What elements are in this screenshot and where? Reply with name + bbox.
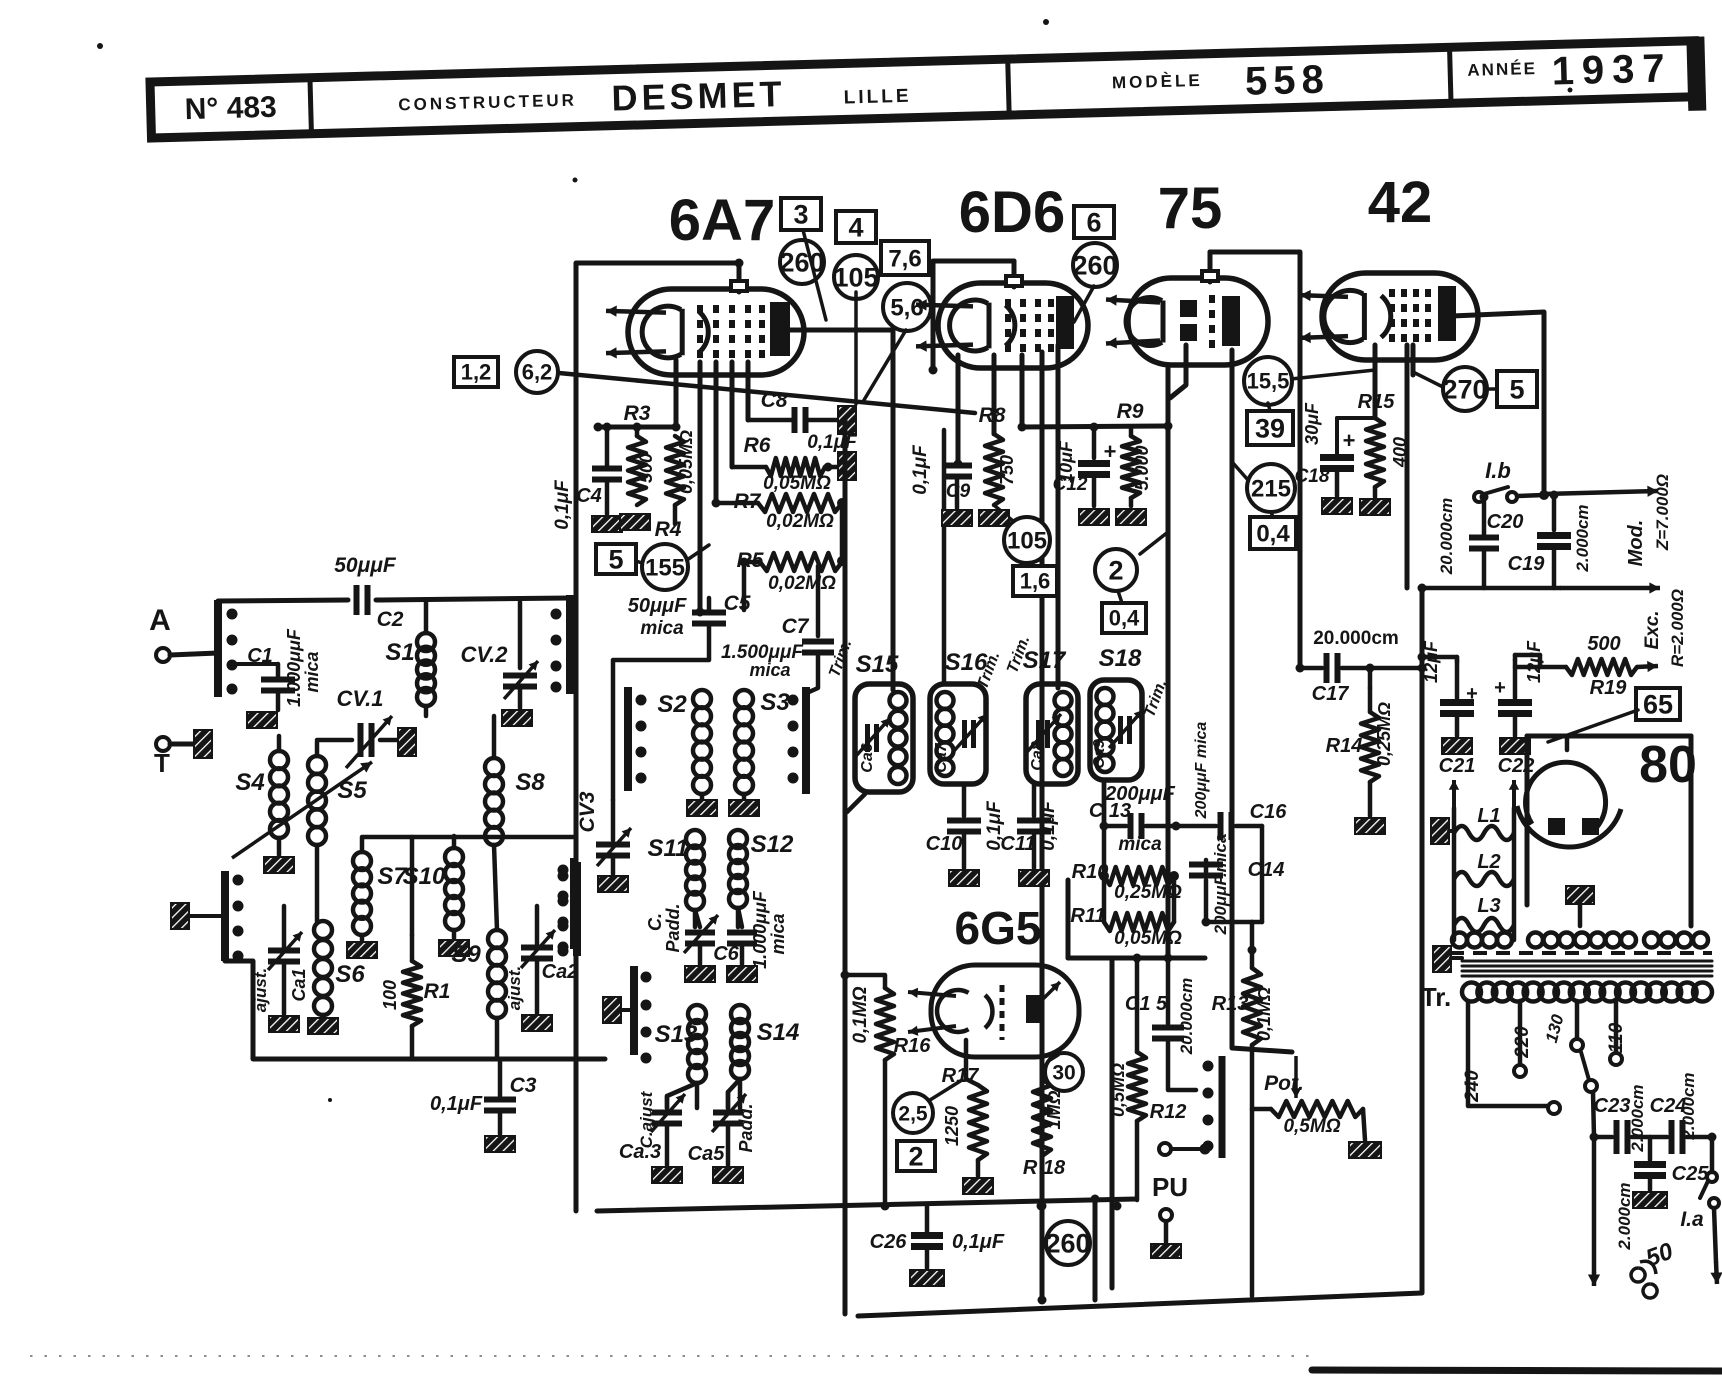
svg-text:S1: S1 xyxy=(385,639,414,666)
svg-text:Ca7: Ca7 xyxy=(933,742,950,772)
svg-text:Exc.: Exc. xyxy=(1642,610,1663,649)
svg-text:50μμF: 50μμF xyxy=(334,554,397,577)
svg-text:0,1μF: 0,1μF xyxy=(552,479,573,530)
svg-text:+: + xyxy=(1494,677,1506,699)
svg-text:A: A xyxy=(149,604,171,637)
svg-text:0,05MΩ: 0,05MΩ xyxy=(676,430,696,494)
svg-text:C5: C5 xyxy=(724,592,751,615)
svg-text:Ca6: Ca6 xyxy=(859,743,876,772)
svg-text:80: 80 xyxy=(1639,736,1697,794)
svg-text:R11: R11 xyxy=(1070,905,1105,927)
svg-text:C3: C3 xyxy=(510,1074,537,1097)
svg-text:PU: PU xyxy=(1152,1172,1188,1202)
svg-text:Pot.: Pot. xyxy=(1264,1072,1304,1095)
svg-text:3: 3 xyxy=(793,199,808,229)
svg-text:0,1μF: 0,1μF xyxy=(1038,800,1059,851)
svg-text:CV.1: CV.1 xyxy=(337,686,384,711)
svg-text:Ca9: Ca9 xyxy=(1091,739,1108,768)
svg-text:R16: R16 xyxy=(894,1035,932,1057)
svg-text:C17: C17 xyxy=(1312,683,1350,705)
svg-text:20.000cm: 20.000cm xyxy=(1437,498,1456,576)
svg-text:S3: S3 xyxy=(760,689,790,716)
svg-text:0,02MΩ: 0,02MΩ xyxy=(766,511,834,532)
svg-text:R 18: R 18 xyxy=(1023,1157,1066,1179)
svg-text:ANNÉE: ANNÉE xyxy=(1467,59,1537,80)
svg-text:500: 500 xyxy=(636,453,656,483)
svg-text:S18: S18 xyxy=(1099,645,1142,672)
svg-text:R3: R3 xyxy=(624,402,651,425)
svg-text:R13: R13 xyxy=(1212,993,1249,1015)
svg-text:400: 400 xyxy=(1390,437,1410,468)
svg-text:N° 483: N° 483 xyxy=(184,91,277,126)
svg-text:C8: C8 xyxy=(761,389,788,412)
svg-text:260: 260 xyxy=(1045,1228,1090,1258)
svg-text:0,1μF: 0,1μF xyxy=(910,444,931,495)
svg-text:6G5: 6G5 xyxy=(955,902,1042,954)
svg-text:C21: C21 xyxy=(1439,755,1476,777)
svg-text:R6: R6 xyxy=(744,434,771,457)
svg-text:0,25MΩ: 0,25MΩ xyxy=(1374,702,1394,766)
svg-text:R14: R14 xyxy=(1326,735,1363,757)
svg-text:R=2.000Ω: R=2.000Ω xyxy=(1668,589,1687,667)
svg-text:C1 5: C1 5 xyxy=(1125,993,1168,1015)
svg-text:C.: C. xyxy=(645,913,665,931)
svg-text:C11: C11 xyxy=(1000,833,1035,855)
svg-text:1MΩ: 1MΩ xyxy=(1044,1090,1064,1129)
svg-text:7,6: 7,6 xyxy=(888,245,921,272)
svg-text:S9: S9 xyxy=(451,941,481,968)
svg-text:0,5MΩ: 0,5MΩ xyxy=(1108,1063,1128,1117)
svg-text:65: 65 xyxy=(1643,689,1673,719)
svg-text:C23: C23 xyxy=(1594,1095,1631,1117)
svg-text:215: 215 xyxy=(1251,475,1291,502)
svg-text:42: 42 xyxy=(1368,170,1433,235)
svg-text:I.b: I.b xyxy=(1485,458,1511,483)
svg-text:4: 4 xyxy=(848,212,863,242)
svg-text:6D6: 6D6 xyxy=(959,180,1065,245)
svg-text:0,1MΩ: 0,1MΩ xyxy=(850,986,871,1043)
svg-text:CV.2: CV.2 xyxy=(461,642,509,667)
svg-text:+: + xyxy=(1466,683,1478,705)
svg-text:mica: mica xyxy=(640,618,684,639)
svg-text:C16: C16 xyxy=(1250,801,1288,823)
svg-text:500: 500 xyxy=(1587,633,1620,655)
svg-text:105: 105 xyxy=(1007,527,1047,554)
svg-text:R8: R8 xyxy=(979,404,1006,427)
svg-text:558: 558 xyxy=(1244,58,1330,104)
svg-text:0,1μF: 0,1μF xyxy=(807,432,858,453)
svg-text:C2: C2 xyxy=(377,608,404,631)
svg-text:R1: R1 xyxy=(424,980,451,1003)
svg-text:2: 2 xyxy=(908,1141,923,1171)
svg-text:39: 39 xyxy=(1255,413,1285,443)
svg-text:C14: C14 xyxy=(1248,859,1285,881)
svg-text:L1: L1 xyxy=(1477,805,1500,827)
svg-text:0,1MΩ: 0,1MΩ xyxy=(1254,987,1274,1041)
svg-text:270: 270 xyxy=(1442,374,1487,404)
svg-text:L3: L3 xyxy=(1477,895,1500,917)
svg-text:0,1μF: 0,1μF xyxy=(952,1231,1005,1253)
svg-text:0,5MΩ: 0,5MΩ xyxy=(1283,1116,1340,1137)
svg-text:C10: C10 xyxy=(926,833,963,855)
svg-text:S17: S17 xyxy=(1023,647,1067,674)
svg-text:C26: C26 xyxy=(870,1231,908,1253)
svg-text:5.000: 5.000 xyxy=(1132,445,1152,490)
svg-text:R15: R15 xyxy=(1358,391,1396,413)
svg-text:mica: mica xyxy=(749,660,790,680)
svg-text:Padd.: Padd. xyxy=(736,1103,756,1152)
svg-text:R9: R9 xyxy=(1117,400,1144,423)
svg-text:0,05MΩ: 0,05MΩ xyxy=(763,473,831,494)
svg-text:0,05MΩ: 0,05MΩ xyxy=(1114,928,1182,949)
svg-text:S13: S13 xyxy=(655,1021,698,1048)
svg-text:S4: S4 xyxy=(235,769,264,796)
svg-text:S11: S11 xyxy=(648,835,689,862)
svg-text:20.000cm: 20.000cm xyxy=(1177,978,1196,1056)
svg-text:2,5: 2,5 xyxy=(898,1102,928,1125)
svg-text:R12: R12 xyxy=(1150,1101,1187,1123)
svg-text:C12: C12 xyxy=(1053,474,1088,495)
svg-text:6,2: 6,2 xyxy=(522,360,553,385)
svg-text:S12: S12 xyxy=(751,831,794,858)
svg-text:C1: C1 xyxy=(247,645,273,667)
svg-text:1,6: 1,6 xyxy=(1020,569,1051,594)
svg-text:S6: S6 xyxy=(335,961,365,988)
svg-text:6A7: 6A7 xyxy=(669,188,775,253)
svg-text:+: + xyxy=(1343,428,1356,453)
svg-text:Z=7.000Ω: Z=7.000Ω xyxy=(1653,474,1672,551)
svg-text:LILLE: LILLE xyxy=(844,86,912,109)
svg-text:30: 30 xyxy=(1052,1061,1075,1084)
svg-text:2.000cm: 2.000cm xyxy=(1573,504,1592,572)
svg-text:I.a: I.a xyxy=(1680,1208,1704,1231)
svg-text:6: 6 xyxy=(1086,207,1101,237)
svg-text:0,1μF: 0,1μF xyxy=(430,1093,483,1115)
svg-text:1250: 1250 xyxy=(942,1106,962,1146)
svg-text:20.000cm: 20.000cm xyxy=(1313,628,1399,649)
svg-text:+: + xyxy=(1104,439,1117,464)
svg-text:mica: mica xyxy=(768,913,788,954)
svg-text:R19: R19 xyxy=(1590,677,1628,699)
svg-text:5: 5 xyxy=(1509,374,1524,404)
svg-text:S10: S10 xyxy=(403,863,446,890)
svg-text:Ca1: Ca1 xyxy=(289,968,309,1001)
svg-text:Tr.: Tr. xyxy=(1421,982,1451,1012)
svg-text:1.000μμF: 1.000μμF xyxy=(750,890,770,969)
svg-text:2.000cm: 2.000cm xyxy=(1615,1182,1634,1250)
svg-text:C6: C6 xyxy=(713,943,739,965)
svg-text:R17: R17 xyxy=(942,1065,980,1087)
svg-text:0,4: 0,4 xyxy=(1109,606,1140,631)
svg-text:S15: S15 xyxy=(856,651,899,678)
svg-text:mica: mica xyxy=(1118,834,1162,855)
svg-text:5: 5 xyxy=(608,544,623,574)
svg-text:5,6: 5,6 xyxy=(890,294,923,321)
svg-text:260: 260 xyxy=(779,247,824,277)
svg-text:750: 750 xyxy=(997,455,1017,485)
svg-text:C.ajust: C.ajust xyxy=(637,1090,656,1148)
svg-text:R7: R7 xyxy=(734,490,762,513)
svg-text:Ca8: Ca8 xyxy=(1029,741,1046,770)
svg-text:1937: 1937 xyxy=(1551,46,1673,93)
svg-text:DESMET: DESMET xyxy=(611,73,786,119)
svg-text:15,5: 15,5 xyxy=(1247,369,1290,394)
svg-text:C7: C7 xyxy=(782,615,810,638)
svg-text:75: 75 xyxy=(1158,176,1223,241)
svg-text:Ca.3: Ca.3 xyxy=(619,1141,661,1163)
svg-text:50μμF: 50μμF xyxy=(628,595,687,617)
svg-text:ajust.: ajust. xyxy=(505,966,524,1010)
svg-text:220: 220 xyxy=(1512,1026,1533,1059)
svg-text:105: 105 xyxy=(833,262,878,292)
svg-text:Ca5: Ca5 xyxy=(688,1143,726,1165)
svg-text:mica: mica xyxy=(302,651,322,692)
svg-text:Mod.: Mod. xyxy=(1625,520,1647,567)
svg-text:2.000cm: 2.000cm xyxy=(1628,1084,1647,1152)
svg-text:CV3: CV3 xyxy=(576,791,599,832)
svg-text:30μF: 30μF xyxy=(1302,402,1322,445)
svg-text:100: 100 xyxy=(380,980,400,1010)
svg-text:Padd.: Padd. xyxy=(663,903,683,952)
svg-text:C9: C9 xyxy=(946,481,971,502)
svg-text:C4: C4 xyxy=(576,485,602,507)
svg-text:S14: S14 xyxy=(757,1019,800,1046)
svg-text:C19: C19 xyxy=(1508,553,1546,575)
svg-text:L2: L2 xyxy=(1477,851,1500,873)
svg-text:C 13: C 13 xyxy=(1089,800,1131,822)
svg-text:Ca2: Ca2 xyxy=(542,961,579,983)
svg-text:2: 2 xyxy=(1108,555,1123,585)
svg-text:0,02MΩ: 0,02MΩ xyxy=(768,573,836,594)
svg-text:200μμF mica: 200μμF mica xyxy=(1193,722,1210,820)
svg-text:0,4: 0,4 xyxy=(1256,520,1290,547)
svg-text:C18: C18 xyxy=(1295,466,1330,487)
svg-text:240: 240 xyxy=(1462,1070,1483,1103)
svg-text:155: 155 xyxy=(645,554,685,581)
svg-text:1.000μμF: 1.000μμF xyxy=(284,628,304,707)
svg-text:R4: R4 xyxy=(655,518,682,541)
svg-text:260: 260 xyxy=(1072,250,1117,280)
svg-text:C25: C25 xyxy=(1672,1163,1710,1185)
svg-text:1,2: 1,2 xyxy=(461,360,492,385)
svg-text:S2: S2 xyxy=(657,691,687,718)
svg-text:S8: S8 xyxy=(515,769,545,796)
svg-text:110: 110 xyxy=(1606,1022,1627,1053)
svg-text:MODÈLE: MODÈLE xyxy=(1112,71,1203,92)
svg-text:2.000cm: 2.000cm xyxy=(1679,1072,1698,1140)
svg-text:C20: C20 xyxy=(1487,511,1524,533)
